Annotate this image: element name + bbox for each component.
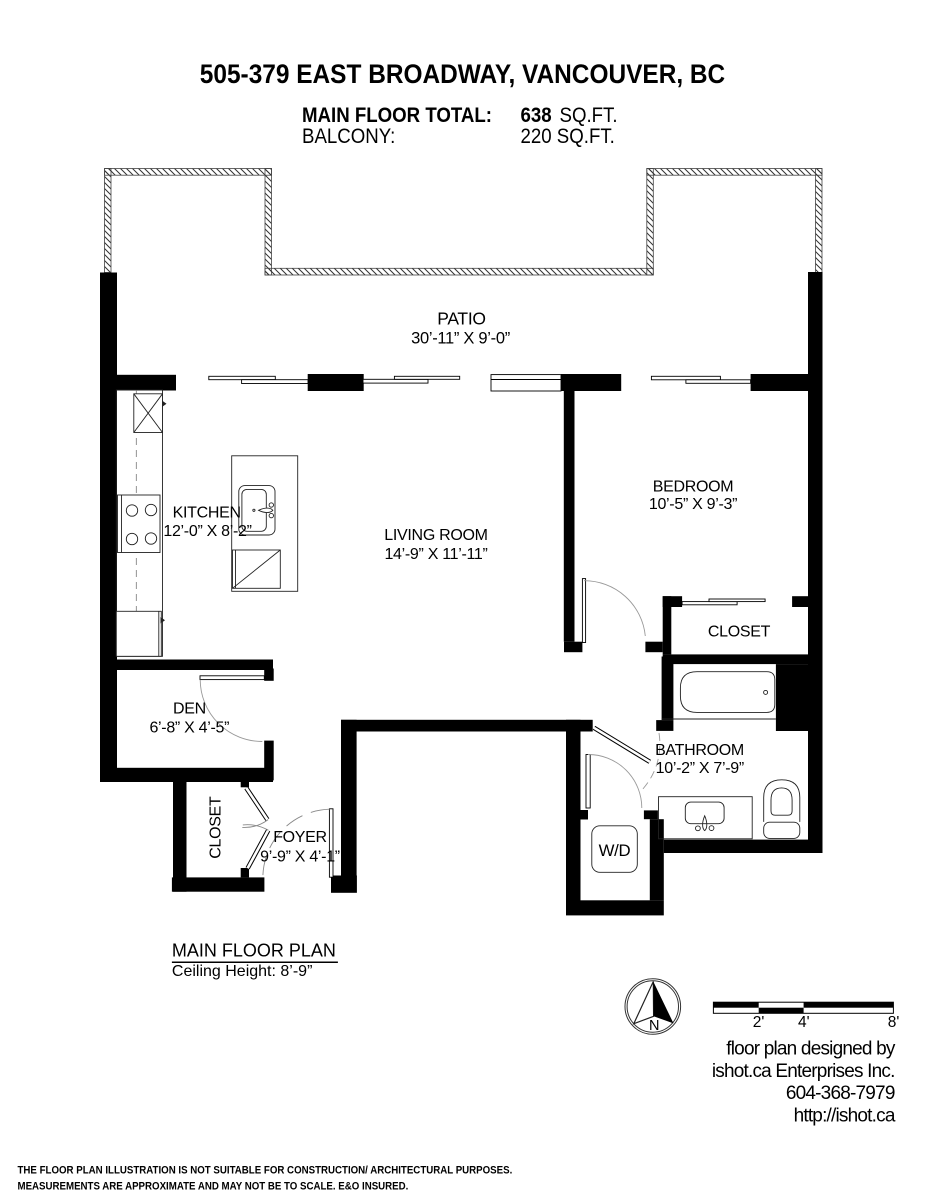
svg-text:http://ishot.ca: http://ishot.ca (794, 1105, 896, 1126)
svg-text:LIVING ROOM: LIVING ROOM (384, 527, 487, 544)
svg-text:604-368-7979: 604-368-7979 (786, 1083, 895, 1104)
svg-text:MAIN FLOOR PLAN: MAIN FLOOR PLAN (172, 941, 336, 961)
svg-text:THE FLOOR PLAN ILLUSTRATION IS: THE FLOOR PLAN ILLUSTRATION IS NOT SUITA… (18, 1164, 513, 1177)
svg-text:FOYER: FOYER (273, 829, 327, 846)
svg-text:BATHROOM: BATHROOM (655, 742, 744, 759)
svg-text:2': 2' (753, 1014, 765, 1031)
svg-text:638: 638 (521, 104, 552, 127)
svg-text:ishot.ca Enterprises Inc.: ishot.ca Enterprises Inc. (712, 1061, 895, 1082)
svg-text:W/D: W/D (599, 841, 631, 860)
svg-text:10’-5” X 9’-3”: 10’-5” X 9’-3” (649, 496, 737, 513)
svg-text:505-379 EAST BROADWAY, VANCOUV: 505-379 EAST BROADWAY, VANCOUVER, BC (200, 60, 725, 89)
svg-text:8': 8' (888, 1014, 900, 1031)
svg-text:4': 4' (798, 1014, 810, 1031)
svg-text:BEDROOM: BEDROOM (653, 478, 734, 495)
svg-text:MAIN FLOOR TOTAL:: MAIN FLOOR TOTAL: (302, 104, 492, 127)
svg-text:PATIO: PATIO (437, 309, 485, 329)
svg-text:MEASUREMENTS ARE APPROXIMATE A: MEASUREMENTS ARE APPROXIMATE AND MAY NOT… (18, 1180, 409, 1193)
svg-text:floor plan designed by: floor plan designed by (726, 1039, 896, 1060)
svg-text:N: N (649, 1018, 659, 1034)
svg-text:6’-8” X 4’-5”: 6’-8” X 4’-5” (149, 719, 229, 736)
svg-text:CLOSET: CLOSET (207, 796, 224, 859)
svg-text:KITCHEN: KITCHEN (173, 505, 241, 522)
svg-text:14’-9” X 11’-11”: 14’-9” X 11’-11” (384, 546, 487, 563)
svg-text:Ceiling Height: 8’-9”: Ceiling Height: 8’-9” (172, 963, 313, 980)
svg-text:SQ.FT.: SQ.FT. (560, 104, 618, 127)
svg-text:CLOSET: CLOSET (708, 623, 771, 640)
svg-text:10’-2” X 7’-9”: 10’-2” X 7’-9” (656, 760, 744, 777)
svg-text:9’-9” X 4’-1”: 9’-9” X 4’-1” (260, 849, 340, 866)
svg-text:30’-11” X 9’-0”: 30’-11” X 9’-0” (411, 329, 510, 347)
svg-text:12’-0” X 8’-2”: 12’-0” X 8’-2” (163, 523, 251, 540)
svg-text:DEN: DEN (173, 701, 206, 718)
svg-text:BALCONY:: BALCONY: (302, 125, 395, 148)
svg-text:220 SQ.FT.: 220 SQ.FT. (521, 125, 615, 148)
